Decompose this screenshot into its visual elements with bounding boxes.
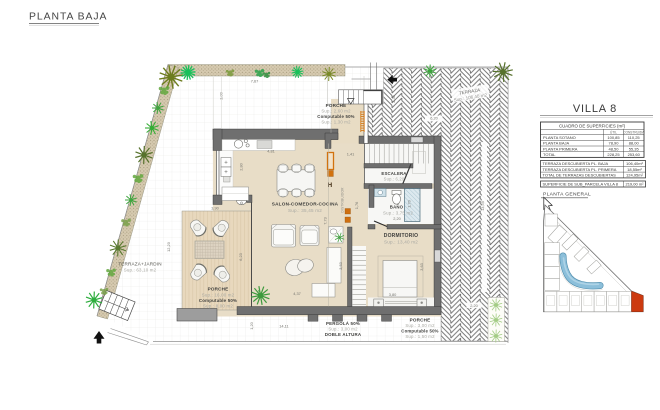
svg-text:228,25: 228,25 [607,152,620,157]
svg-text:PLANTA GENERAL: PLANTA GENERAL [543,192,591,198]
svg-text:2,30: 2,30 [391,94,396,102]
svg-text:Computable 50%: Computable 50% [401,329,438,334]
svg-text:3,63: 3,63 [419,263,424,271]
svg-text:78,90: 78,90 [608,141,619,146]
svg-text:48,50: 48,50 [608,146,619,151]
svg-text:253,60: 253,60 [628,152,641,157]
svg-text:PLANTA BAJA: PLANTA BAJA [29,12,107,23]
svg-text:3,53: 3,53 [338,262,343,270]
svg-text:VILLA 8: VILLA 8 [573,103,617,115]
svg-text:ÚTIL: ÚTIL [610,129,617,134]
svg-text:TOTAL: TOTAL [543,152,556,157]
svg-text:3,90: 3,90 [211,206,219,211]
svg-text:DORMITORIO: DORMITORIO [384,233,418,239]
svg-text:Computable 50%: Computable 50% [199,298,237,303]
svg-text:3,00: 3,00 [219,91,224,99]
svg-text:Sup.: 63,10 m2: Sup.: 63,10 m2 [124,268,157,273]
svg-text:PLANTA PRIMERA: PLANTA PRIMERA [543,146,578,151]
svg-text:6,23: 6,23 [238,253,243,261]
svg-text:Sup.: 3,75 m2: Sup.: 3,75 m2 [383,211,413,216]
svg-text:1,70: 1,70 [407,199,412,207]
svg-text:DISTRIBUIDOR: DISTRIBUIDOR [341,187,345,213]
svg-text:2,20: 2,20 [393,216,401,221]
svg-text:CONSTRUIDA: CONSTRUIDA [623,130,645,134]
svg-text:Sup.: 2,60 m2: Sup.: 2,60 m2 [321,109,351,114]
svg-text:110,25: 110,25 [628,135,641,140]
svg-text:100,85: 100,85 [607,135,620,140]
svg-text:TOTAL DE TERRAZAS DESCUBIERTAS: TOTAL DE TERRAZAS DESCUBIERTAS [543,173,617,178]
svg-text:PORCHE: PORCHE [208,287,229,292]
svg-text:PORCHE: PORCHE [326,103,347,108]
svg-text:Sup.: 16,00 m2: Sup.: 16,00 m2 [202,293,235,298]
svg-text:4,81: 4,81 [267,149,275,154]
svg-text:Sup.: 8,00 m2: Sup.: 8,00 m2 [203,304,233,309]
svg-text:DOBLE ALTURA: DOBLE ALTURA [325,332,362,337]
svg-text:2,80: 2,80 [239,162,244,170]
svg-text:TERRAZA+JARDIN: TERRAZA+JARDIN [118,262,162,267]
svg-text:1,41: 1,41 [347,152,355,157]
svg-text:13,55: 13,55 [480,201,485,211]
svg-text:PORCHE: PORCHE [410,318,431,323]
svg-text:12,20: 12,20 [166,241,171,252]
svg-text:TERRAZA DESCUBIERTA PL. PRIMER: TERRAZA DESCUBIERTA PL. PRIMERA [543,167,617,172]
svg-text:Sup.: 3,00 m2: Sup.: 3,00 m2 [405,323,435,328]
svg-text:Sup.: 35,45 m2: Sup.: 35,45 m2 [288,208,322,213]
svg-text:Sup.: 1,30 m2: Sup.: 1,30 m2 [321,120,351,125]
svg-text:TERRAZA DESCUBIERTA PL. BAJA: TERRAZA DESCUBIERTA PL. BAJA [543,161,609,166]
svg-text:1,76: 1,76 [354,202,359,210]
svg-text:Sup.: 3,00 m2: Sup.: 3,00 m2 [328,327,358,332]
svg-text:88,00: 88,00 [629,141,640,146]
svg-text:124,95m²: 124,95m² [626,173,644,178]
svg-text:Sup.: 1,50 m2: Sup.: 1,50 m2 [405,334,435,339]
svg-text:PERGOLÁ 50%: PERGOLÁ 50% [326,321,360,326]
svg-text:Sup.: 13,40 m2: Sup.: 13,40 m2 [384,240,418,245]
svg-text:Computable 50%: Computable 50% [317,114,354,119]
svg-text:ESCALERA: ESCALERA [381,171,406,176]
svg-text:14,11: 14,11 [279,324,288,329]
svg-text:219,00 m²: 219,00 m² [625,182,644,187]
svg-text:3,80: 3,80 [389,292,397,297]
svg-text:7,73: 7,73 [323,217,328,225]
svg-text:4,37: 4,37 [293,291,301,296]
svg-text:1,20: 1,20 [249,321,254,329]
svg-text:7,67: 7,67 [251,79,259,84]
svg-text:55,35: 55,35 [629,146,640,151]
svg-text:CUADRO DE SUPERFICIES (m²): CUADRO DE SUPERFICIES (m²) [559,124,626,129]
svg-text:SUPERFICIE DE SUB_PARCELA VILL: SUPERFICIE DE SUB_PARCELA VILLA 8 [543,182,619,187]
svg-text:106,40m²: 106,40m² [626,161,644,166]
svg-text:18,55m²: 18,55m² [627,167,642,172]
svg-text:Sup.: 6,20: Sup.: 6,20 [384,177,405,182]
svg-text:PLANTA SOTANO: PLANTA SOTANO [543,135,576,140]
svg-text:PLANTA BAJA: PLANTA BAJA [543,141,569,146]
svg-text:BAÑO: BAÑO [390,205,404,210]
svg-text:2,20: 2,20 [470,303,478,308]
svg-text:6,20: 6,20 [430,116,438,121]
